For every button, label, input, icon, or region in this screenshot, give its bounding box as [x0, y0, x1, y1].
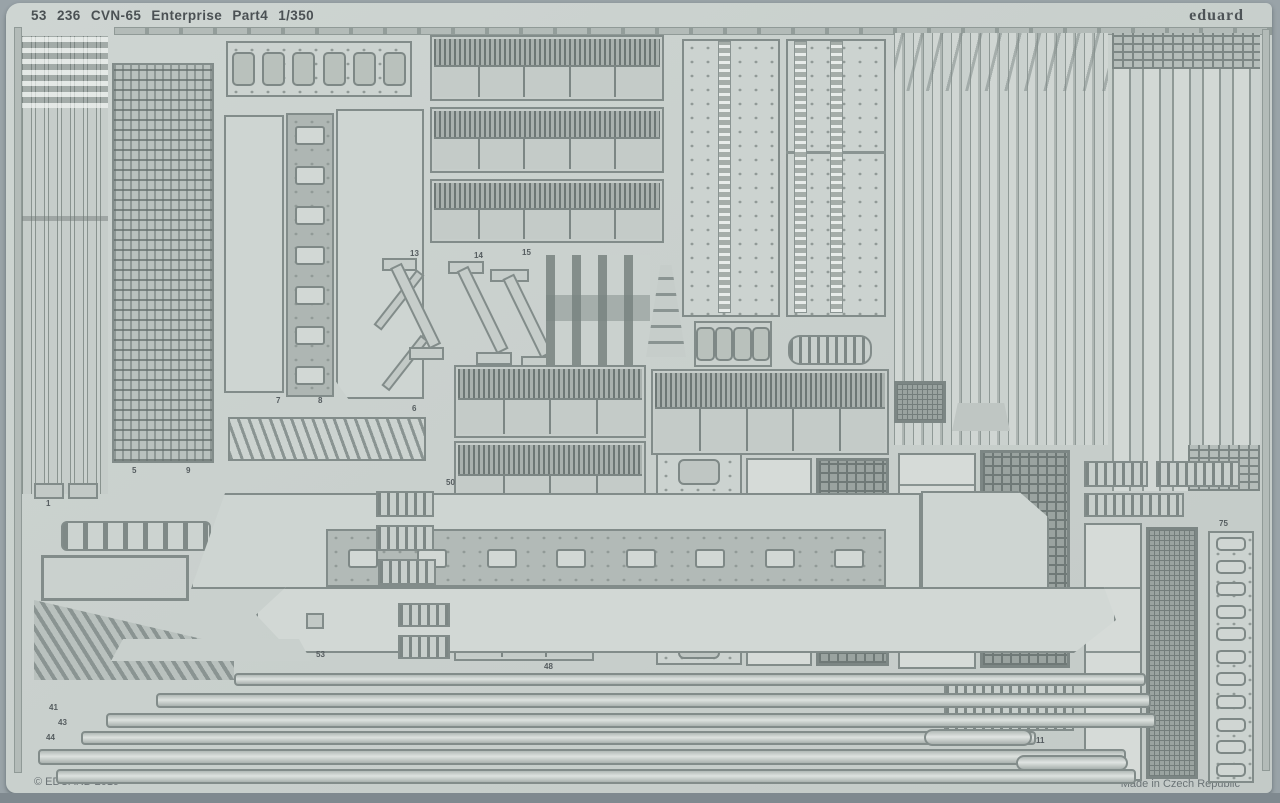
fret-rail-right [1262, 29, 1270, 771]
product-photo: 53 236 CVN-65 Enterprise Part4 1/350 edu… [0, 0, 1280, 803]
slot [696, 327, 715, 361]
part-small-plate-1 [34, 483, 64, 499]
bay [523, 139, 569, 169]
part-antenna-bar-1 [234, 673, 1146, 686]
bay [434, 210, 478, 239]
part-small-comb-2 [1156, 461, 1240, 487]
lslot [1216, 740, 1246, 754]
part-number-label: 8 [318, 397, 322, 405]
part-gallery-corner [921, 491, 1049, 603]
part-hull-plate-left [224, 115, 284, 393]
z-bar [409, 347, 444, 360]
part-perforated-strip-1 [718, 41, 731, 313]
grating-comb [458, 369, 642, 400]
bracket [626, 549, 656, 568]
part-number-label: 6 [412, 405, 416, 413]
part-antenna-bar-4 [81, 731, 1036, 745]
slot [232, 52, 255, 86]
part-number-label: 11 [1036, 737, 1044, 745]
bracket [695, 549, 725, 568]
part-trapezoid-53 [111, 639, 311, 661]
bracket [348, 549, 378, 568]
part-grating-4 [454, 365, 646, 438]
slot [353, 52, 376, 86]
bay [478, 210, 524, 239]
bay [614, 67, 660, 97]
part-grating-3 [430, 179, 664, 243]
bracket [295, 166, 325, 185]
bay [549, 400, 596, 434]
bay [478, 67, 524, 97]
part-number-label: 75 [1219, 520, 1228, 528]
part-ladder-slot-strip [1208, 531, 1254, 783]
slot [262, 52, 285, 86]
part-number-label: 13 [410, 250, 419, 258]
lslot [1216, 605, 1246, 619]
slot [752, 327, 771, 361]
part-number-label: 14 [474, 252, 483, 260]
part-mini-comb-2 [376, 525, 434, 551]
part-antenna-bar-5 [38, 749, 1126, 765]
bay [569, 139, 615, 169]
part-grating-2 [430, 107, 664, 173]
part-number-label: 15 [522, 249, 531, 257]
part-number-label: 7 [276, 397, 280, 405]
bay [614, 139, 660, 169]
lslot [1216, 718, 1246, 732]
bracket [295, 246, 325, 265]
lslot [1216, 763, 1246, 777]
bay [839, 409, 885, 451]
grating-bays [434, 139, 660, 169]
bay [434, 139, 478, 169]
part-coil-strip [788, 335, 872, 365]
part-tall-panel [1084, 523, 1142, 781]
bay [503, 400, 550, 434]
grating-comb [458, 445, 642, 476]
slot [383, 52, 406, 86]
grating-bays [655, 409, 885, 451]
part-number-label: 41 [49, 704, 58, 712]
part-number-label: 53 [316, 651, 325, 659]
part-tall-mesh-column [1146, 527, 1198, 779]
part-ladder-strips-left [22, 36, 108, 494]
bracket [487, 549, 517, 568]
part-antenna-bullet-cap-1 [924, 729, 1032, 746]
bay [478, 139, 524, 169]
part-trapezoid-4 [952, 403, 1010, 431]
part-grating-1 [430, 35, 664, 101]
slot [292, 52, 315, 86]
lslot [1216, 537, 1246, 551]
bracket [765, 549, 795, 568]
part-mini-comb-1 [376, 491, 434, 517]
grating-comb [434, 183, 660, 210]
slot [733, 327, 752, 361]
part-diagonal-comb [228, 417, 426, 461]
bay [434, 67, 478, 97]
bay [699, 409, 745, 451]
part-bracket-channel [286, 113, 334, 397]
grating-comb [655, 373, 885, 409]
part-small-hatch [306, 613, 324, 629]
bracket [295, 126, 325, 145]
bay [596, 400, 643, 434]
slot [323, 52, 346, 86]
sect [900, 455, 974, 484]
slotv [678, 459, 720, 485]
part-z-brace-1 [382, 258, 444, 360]
z-bar [390, 263, 441, 349]
part-horizontal-ladder [61, 521, 211, 551]
bay [569, 210, 615, 239]
bay [792, 409, 838, 451]
part-mini-comb-4 [398, 603, 450, 627]
sect [1086, 525, 1140, 587]
part-perforated-strip-3 [830, 41, 843, 313]
grating-comb [434, 39, 660, 67]
part-perforated-strip-2 [794, 41, 807, 313]
eduard-logo: eduard [1189, 7, 1244, 25]
lslot [1216, 672, 1246, 686]
part-number-label: 1 [46, 500, 50, 508]
grating-bays [458, 400, 642, 434]
part-small-grid [894, 381, 946, 423]
part-antenna-bar-3 [106, 713, 1156, 728]
bracket [295, 326, 325, 345]
bay [523, 210, 569, 239]
part-number-label: 43 [58, 719, 67, 727]
grating-bays [434, 210, 660, 239]
bay [746, 409, 792, 451]
part-antenna-bar-2 [156, 693, 1151, 708]
photo-edge-band [0, 793, 1280, 803]
part-hollow-frame [41, 555, 189, 601]
bracket [295, 286, 325, 305]
part-antenna-strips-straight [1112, 33, 1260, 491]
bay [458, 400, 503, 434]
lslot [1216, 560, 1246, 574]
part-mini-comb-5 [398, 635, 450, 659]
bracket [295, 206, 325, 225]
slot [715, 327, 734, 361]
bay [523, 67, 569, 97]
part-hatch-strip [226, 41, 412, 97]
bracket [295, 366, 325, 385]
part-number-label: 9 [186, 467, 190, 475]
z-bar [502, 274, 552, 359]
lslot [1216, 582, 1246, 596]
part-number-label: 5 [132, 467, 136, 475]
bay [655, 409, 699, 451]
part-deck-grid-panel [112, 63, 214, 463]
part-dotted-panel-1 [682, 39, 780, 317]
strip-crosshatch-top [1112, 33, 1260, 69]
part-grating-wide [651, 369, 889, 455]
bay [569, 67, 615, 97]
part-antenna-bullet-cap-2 [1016, 755, 1128, 771]
photo-etch-fret-sheet: 53 236 CVN-65 Enterprise Part4 1/350 edu… [6, 3, 1272, 793]
part-antenna-bar-6 [56, 769, 1136, 784]
part-a-frame [646, 265, 686, 357]
lslot [1216, 627, 1246, 641]
bay [614, 210, 660, 239]
lslot [1216, 695, 1246, 709]
lslot [1216, 650, 1246, 664]
grating-comb [434, 111, 660, 139]
part-small-comb-1 [1084, 461, 1148, 487]
part-small-plate-2 [68, 483, 98, 499]
part-number-label: 44 [46, 734, 55, 742]
part-number-label: 48 [544, 663, 553, 671]
fret-rail-left [14, 27, 22, 773]
bracket [834, 549, 864, 568]
sheet-title: 53 236 CVN-65 Enterprise Part4 1/350 [31, 8, 314, 23]
bracket [556, 549, 586, 568]
part-small-comb-3 [1084, 493, 1184, 517]
part-number-label: 50 [446, 479, 455, 487]
part-stanchion-crossband [546, 295, 650, 321]
grating-bays [434, 67, 660, 97]
part-mini-comb-3 [378, 559, 436, 585]
part-slat-block [694, 321, 772, 367]
part-gallery-lower [256, 587, 1116, 653]
